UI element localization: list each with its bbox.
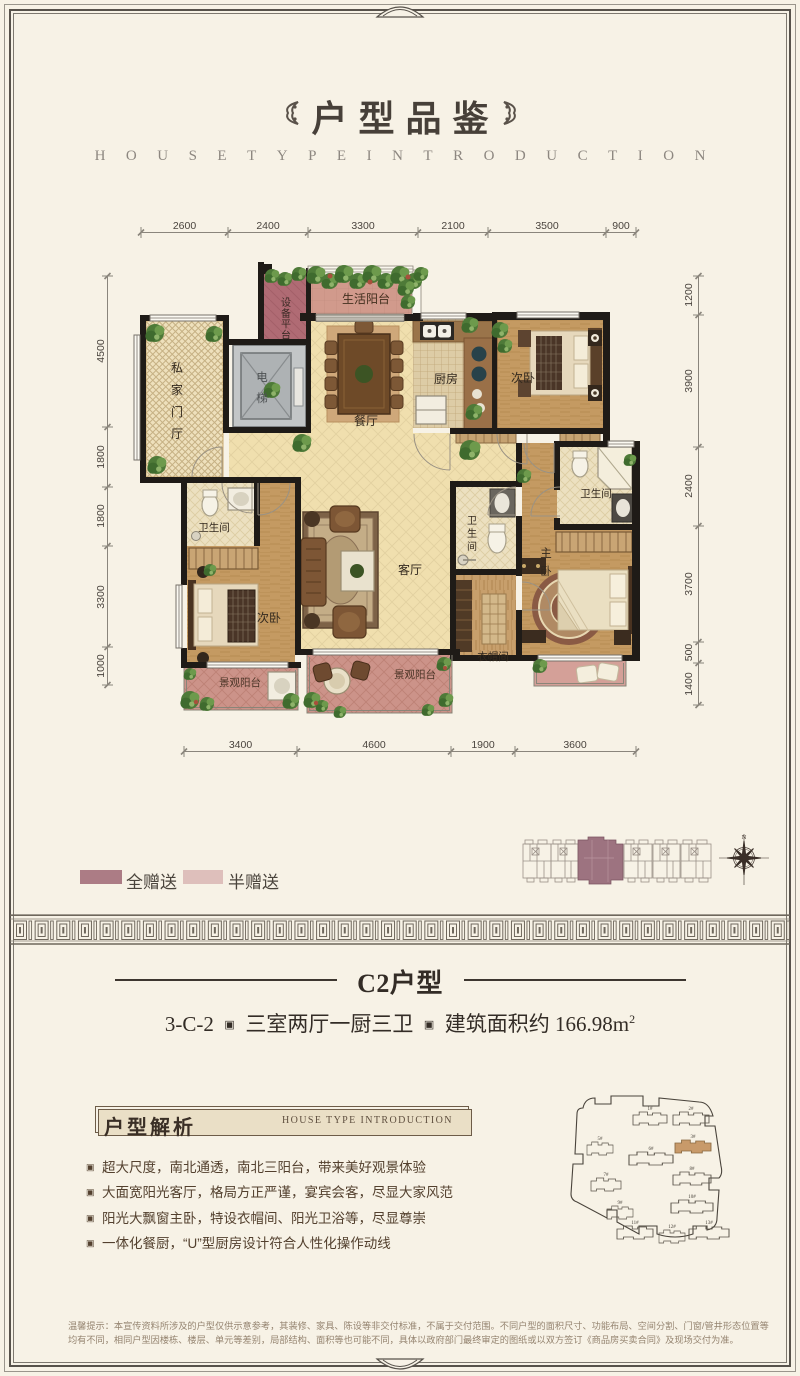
svg-text:5#: 5# [598,1137,604,1142]
svg-text:12#: 12# [668,1225,676,1230]
svg-text:3300: 3300 [95,585,107,609]
svg-text:3300: 3300 [351,220,375,232]
svg-text:1400: 1400 [683,672,695,696]
svg-text:餐厅: 餐厅 [354,413,378,428]
svg-text:1#: 1# [648,1107,654,1112]
svg-text:2400: 2400 [256,220,280,232]
svg-text:景观阳台: 景观阳台 [394,668,436,681]
svg-text:6#: 6# [649,1147,655,1152]
svg-text:3400: 3400 [229,739,253,751]
svg-text:卫生间: 卫生间 [198,521,230,534]
svg-text:500: 500 [683,644,695,662]
svg-text:1000: 1000 [95,654,107,678]
svg-text:3600: 3600 [563,739,587,751]
svg-text:卫生间: 卫生间 [467,516,477,553]
svg-text:4500: 4500 [95,339,107,363]
svg-text:厨房: 厨房 [434,371,458,386]
svg-text:次卧: 次卧 [511,371,535,385]
svg-text:设备平台: 设备平台 [281,297,291,341]
svg-text:1200: 1200 [683,283,695,307]
svg-text:生活阳台: 生活阳台 [342,291,390,306]
svg-text:3500: 3500 [535,220,559,232]
svg-text:N: N [742,834,747,841]
svg-text:900: 900 [612,220,630,232]
svg-text:3700: 3700 [683,572,695,596]
svg-text:13#: 13# [705,1221,713,1226]
svg-text:7#: 7# [604,1173,610,1178]
svg-text:4600: 4600 [362,739,386,751]
svg-text:衣帽间: 衣帽间 [477,650,509,663]
svg-text:2#: 2# [689,1107,695,1112]
svg-text:客厅: 客厅 [398,562,422,577]
svg-text:卫生间: 卫生间 [580,487,612,500]
svg-text:10#: 10# [688,1195,696,1200]
svg-text:9#: 9# [618,1201,624,1206]
svg-text:3900: 3900 [683,369,695,393]
svg-text:1800: 1800 [95,504,107,528]
svg-text:1800: 1800 [95,445,107,469]
svg-text:11#: 11# [631,1221,639,1226]
svg-text:3#: 3# [691,1135,697,1140]
svg-text:次卧: 次卧 [257,611,281,625]
svg-text:8#: 8# [690,1167,696,1172]
svg-text:2100: 2100 [441,220,465,232]
svg-text:2600: 2600 [173,220,197,232]
svg-text:2400: 2400 [683,474,695,498]
svg-text:1900: 1900 [471,739,495,751]
svg-text:景观阳台: 景观阳台 [219,676,261,689]
